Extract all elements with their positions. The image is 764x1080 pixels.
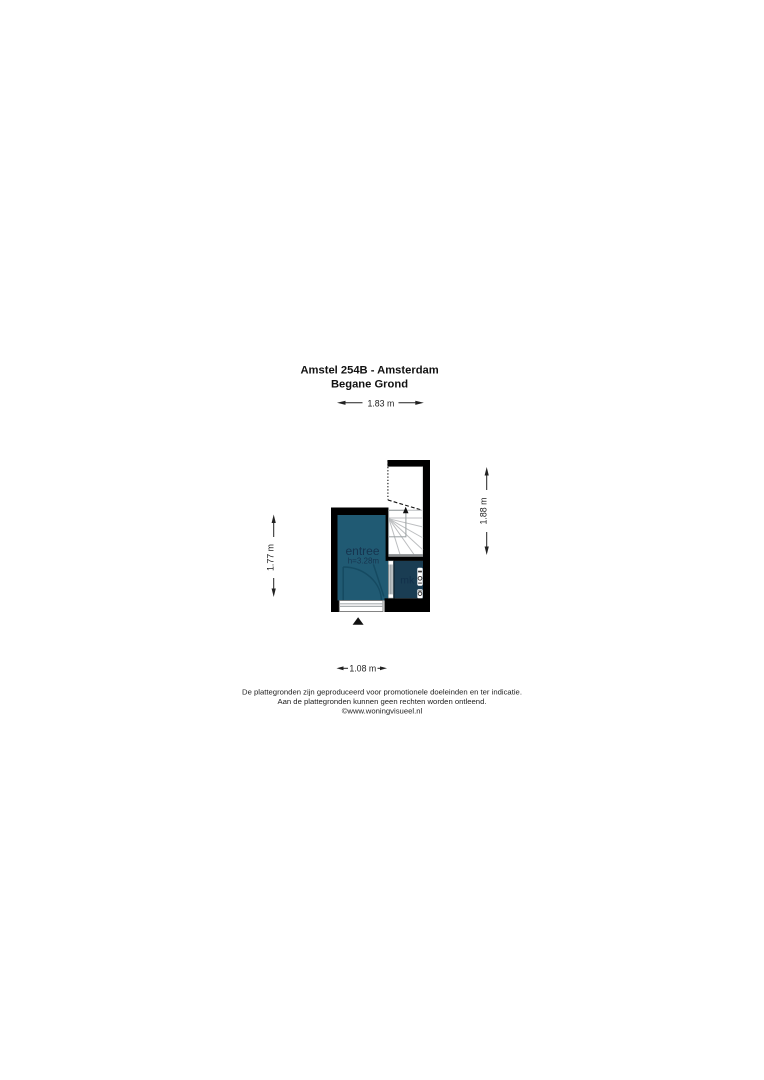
svg-text:1.88 m: 1.88 m xyxy=(479,498,489,525)
svg-text:Amstel 254B - Amsterdam: Amstel 254B - Amsterdam xyxy=(300,364,438,376)
svg-text:©www.woningvisueel.nl: ©www.woningvisueel.nl xyxy=(342,706,423,715)
svg-text:h=3.28m: h=3.28m xyxy=(348,556,380,565)
svg-text:De plattegronden zijn geproduc: De plattegronden zijn geproduceerd voor … xyxy=(242,687,522,696)
svg-text:Aan de plattegronden kunnen ge: Aan de plattegronden kunnen geen rechten… xyxy=(277,697,486,706)
svg-text:1.83 m: 1.83 m xyxy=(367,398,394,408)
svg-text:mk: mk xyxy=(400,575,415,587)
svg-text:Begane Grond: Begane Grond xyxy=(331,378,408,390)
svg-text:1.08 m: 1.08 m xyxy=(349,663,376,673)
svg-text:1.77 m: 1.77 m xyxy=(266,544,276,571)
